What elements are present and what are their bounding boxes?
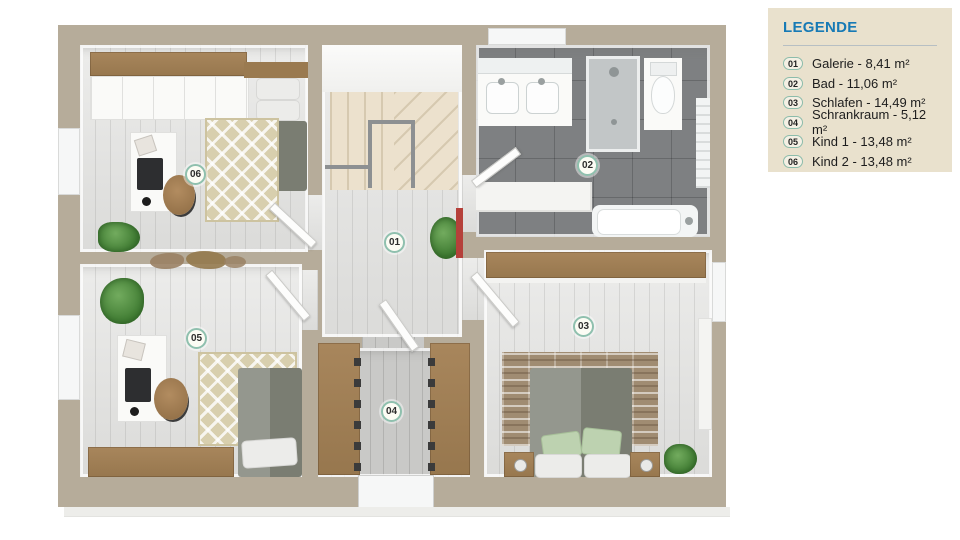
wardrobe-doors [90,76,249,120]
closet-cabinets [430,343,470,475]
building-base-edge [64,507,730,517]
bed-pillow [256,78,300,100]
bath-partition-wall [476,182,592,212]
stair-railing [325,165,372,169]
hanging-clothes [354,347,361,471]
table-lamp [640,459,653,472]
legend-label: Galerie - 8,41 m² [812,56,910,71]
window-kind2-left [58,128,80,195]
stair-railing [411,120,415,188]
legend-divider [783,45,937,46]
table-lamp [514,459,527,472]
bed-pillow [535,454,582,478]
legend-badge: 04 [783,116,803,129]
mug [130,407,139,416]
room-badge-01: 01 [384,232,405,253]
hanging-clothes [428,347,435,471]
stairs-straight-flight [330,92,394,190]
room-badge-06: 06 [185,164,206,185]
window-schlafen-right [712,262,726,322]
legend-title: LEGENDE [783,19,939,36]
towel-radiator [696,98,710,188]
doorway-kind1 [302,270,318,330]
bed-pillow [241,437,298,469]
sink [486,82,519,114]
room-badge-02: 02 [577,155,598,176]
bathtub-basin [597,209,681,235]
legend-badge: 02 [783,77,803,90]
wardrobe [486,252,706,278]
mug [142,197,151,206]
computer-monitor [125,368,151,402]
drain [611,119,617,125]
legend-item-schrankraum: 04 Schrankraum - 5,12 m² [783,113,939,133]
toilet-niche [644,58,682,130]
rug [205,118,279,222]
computer-monitor [137,158,163,190]
stair-railing [368,120,372,188]
room-badge-03: 03 [573,316,594,337]
legend-list: 01 Galerie - 8,41 m² 02 Bad - 11,06 m² 0… [783,54,939,171]
bed-headboard [244,62,308,78]
wardrobe [90,52,247,76]
stairs [330,92,458,190]
faucet [498,78,505,85]
legend-label: Kind 2 - 13,48 m² [812,154,912,169]
office-chair [154,378,188,420]
faucet [538,78,545,85]
shelf-unit [698,318,712,430]
window-bad-top [488,28,566,45]
vanity-counter [478,58,572,126]
bathtub-faucet [685,217,693,225]
legend-item-galerie: 01 Galerie - 8,41 m² [783,54,939,74]
sink [526,82,559,114]
legend-badge: 05 [783,135,803,148]
toilet-bowl [651,76,675,114]
legend-panel: LEGENDE 01 Galerie - 8,41 m² 02 Bad - 11… [768,8,952,172]
legend-badge: 01 [783,57,803,70]
bathtub [592,205,698,237]
shower [586,56,640,152]
legend-label: Kind 1 - 13,48 m² [812,134,912,149]
sideboard [88,447,234,477]
room-badge-05: 05 [186,328,207,349]
potted-plant [100,278,144,324]
floorplan-building: 01 02 03 04 05 06 [58,25,726,507]
potted-plant [98,222,140,252]
window-kind1-left [58,315,80,400]
legend-label: Bad - 11,06 m² [812,76,897,91]
room-badge-04: 04 [381,401,402,422]
legend-label: Schrankraum - 5,12 m² [812,107,939,137]
toilet-tank [650,62,677,76]
world-map-decal [224,256,246,268]
mirror [478,58,572,74]
stair-railing [368,120,415,124]
legend-item-bad: 02 Bad - 11,06 m² [783,74,939,94]
wardrobe-front [486,278,706,283]
stairs-winder-flight [394,92,458,190]
legend-badge: 03 [783,96,803,109]
bed-pillow [584,454,631,478]
legend-item-kind2: 06 Kind 2 - 13,48 m² [783,152,939,172]
stairwell-upper-wall [322,45,462,92]
wall-art-red [456,208,463,258]
legend-badge: 06 [783,155,803,168]
shower-head [609,67,619,77]
